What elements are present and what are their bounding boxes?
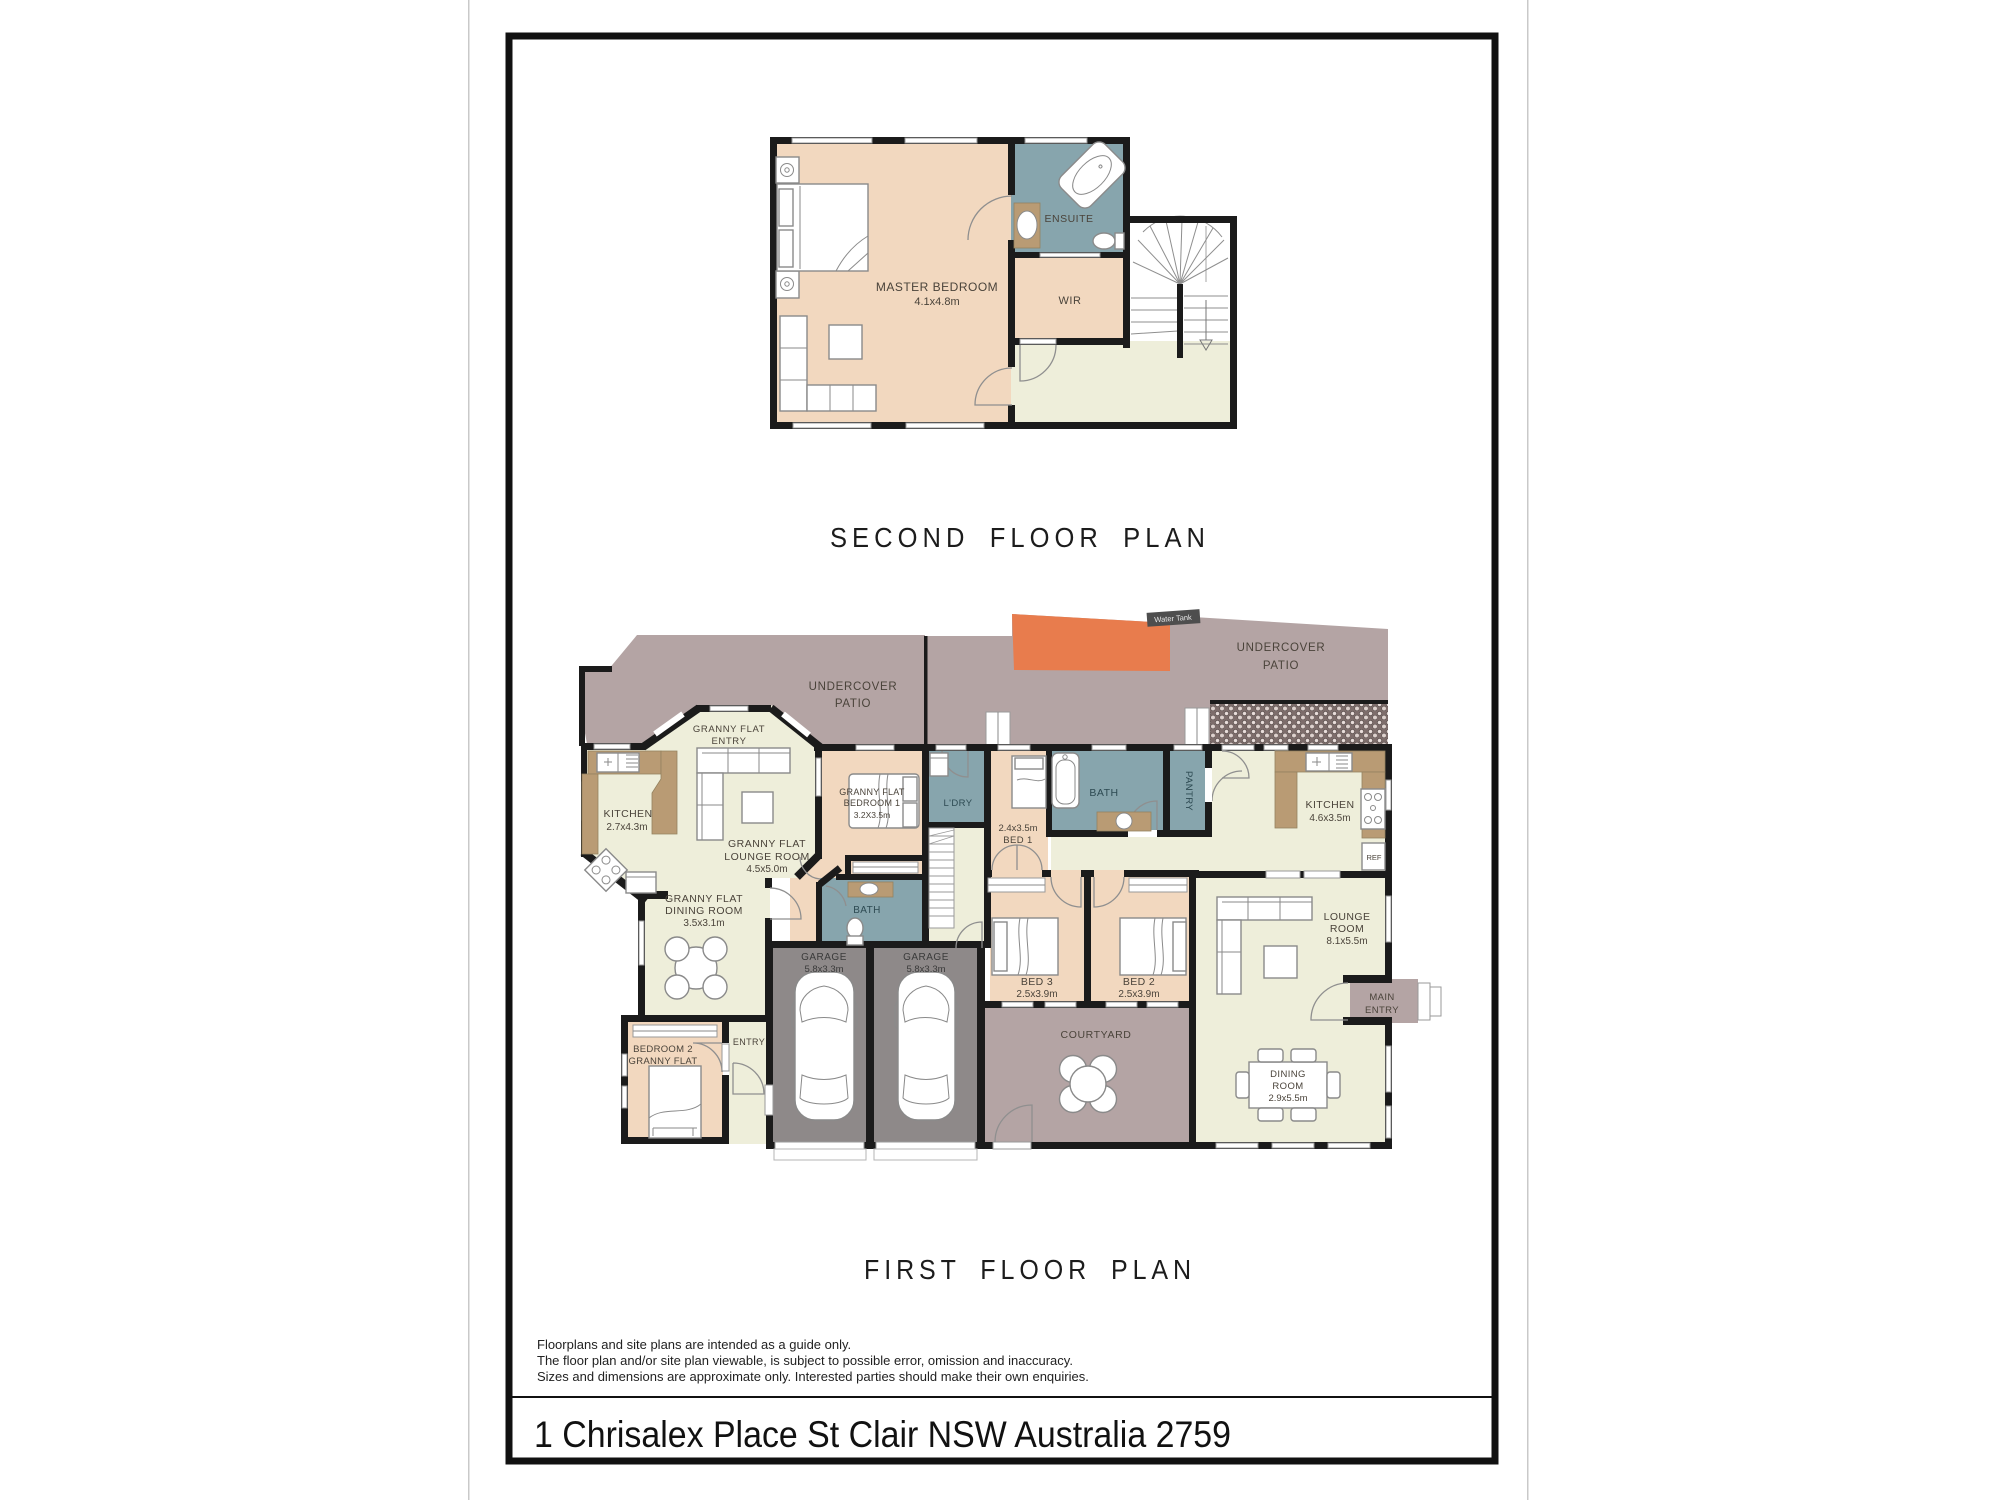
svg-text:WIR: WIR bbox=[1059, 295, 1082, 307]
svg-text:L'DRY: L'DRY bbox=[944, 798, 973, 809]
svg-text:5.8x3.3m: 5.8x3.3m bbox=[906, 964, 945, 975]
svg-text:LOUNGE: LOUNGE bbox=[1324, 911, 1371, 923]
svg-text:4.6x3.5m: 4.6x3.5m bbox=[1309, 813, 1350, 824]
svg-text:SECOND FLOOR PLAN: SECOND FLOOR PLAN bbox=[830, 522, 1210, 553]
svg-text:GRANNY FLAT: GRANNY FLAT bbox=[839, 787, 905, 797]
svg-text:GRANNY FLAT: GRANNY FLAT bbox=[693, 724, 765, 735]
svg-text:DINING ROOM: DINING ROOM bbox=[665, 905, 743, 917]
svg-text:PATIO: PATIO bbox=[835, 698, 871, 710]
svg-text:KITCHEN: KITCHEN bbox=[604, 808, 653, 820]
svg-text:2.5x3.9m: 2.5x3.9m bbox=[1016, 989, 1057, 1000]
svg-text:PATIO: PATIO bbox=[1263, 660, 1299, 672]
svg-text:8.1x5.5m: 8.1x5.5m bbox=[1326, 936, 1367, 947]
svg-text:UNDERCOVER: UNDERCOVER bbox=[809, 681, 898, 693]
svg-text:3.2X3.5m: 3.2X3.5m bbox=[854, 810, 890, 820]
svg-text:BATH: BATH bbox=[1089, 787, 1118, 799]
svg-text:ENTRY: ENTRY bbox=[733, 1037, 765, 1047]
svg-text:ENSUITE: ENSUITE bbox=[1044, 213, 1093, 225]
svg-text:2.4x3.5m: 2.4x3.5m bbox=[998, 823, 1037, 834]
svg-text:5.8x3.3m: 5.8x3.3m bbox=[804, 964, 843, 975]
svg-text:4.1x4.8m: 4.1x4.8m bbox=[914, 296, 959, 308]
svg-text:ENTRY: ENTRY bbox=[1365, 1005, 1399, 1016]
svg-text:GARAGE: GARAGE bbox=[903, 952, 949, 963]
svg-text:BED 1: BED 1 bbox=[1003, 835, 1032, 846]
svg-text:REF: REF bbox=[1367, 853, 1382, 862]
svg-text:GARAGE: GARAGE bbox=[801, 952, 847, 963]
svg-text:3.5x3.1m: 3.5x3.1m bbox=[683, 918, 724, 929]
svg-text:2.9x5.5m: 2.9x5.5m bbox=[1268, 1093, 1307, 1104]
svg-text:ROOM: ROOM bbox=[1272, 1081, 1303, 1092]
svg-text:2.7x4.3m: 2.7x4.3m bbox=[606, 822, 647, 833]
svg-text:Floorplans and site plans are: Floorplans and site plans are intended a… bbox=[537, 1337, 851, 1352]
svg-text:MAIN: MAIN bbox=[1369, 992, 1394, 1003]
svg-text:GRANNY FLAT: GRANNY FLAT bbox=[629, 1056, 698, 1067]
svg-text:ROOM: ROOM bbox=[1330, 923, 1364, 935]
svg-text:BATH: BATH bbox=[853, 905, 881, 916]
svg-text:GRANNY FLAT: GRANNY FLAT bbox=[665, 893, 743, 905]
svg-text:Sizes and dimensions are appro: Sizes and dimensions are approximate onl… bbox=[537, 1369, 1089, 1384]
svg-text:GRANNY FLAT: GRANNY FLAT bbox=[728, 838, 806, 850]
svg-text:4.5x5.0m: 4.5x5.0m bbox=[746, 864, 787, 875]
svg-text:PANTRY: PANTRY bbox=[1183, 771, 1194, 811]
svg-text:ENTRY: ENTRY bbox=[711, 736, 746, 747]
svg-text:BEDROOM 2: BEDROOM 2 bbox=[633, 1044, 693, 1055]
svg-text:LOUNGE ROOM: LOUNGE ROOM bbox=[724, 851, 809, 863]
svg-text:BEDROOM 1: BEDROOM 1 bbox=[844, 798, 901, 808]
svg-text:BED 3: BED 3 bbox=[1021, 976, 1053, 988]
svg-text:BED 2: BED 2 bbox=[1123, 976, 1155, 988]
svg-text:KITCHEN: KITCHEN bbox=[1306, 799, 1355, 811]
svg-text:1 Chrisalex Place St Clair NSW: 1 Chrisalex Place St Clair NSW Australia… bbox=[534, 1414, 1231, 1455]
svg-text:MASTER BEDROOM: MASTER BEDROOM bbox=[876, 280, 998, 294]
svg-text:FIRST FLOOR PLAN: FIRST FLOOR PLAN bbox=[864, 1254, 1196, 1285]
svg-text:The floor plan and/or site pla: The floor plan and/or site plan viewable… bbox=[537, 1353, 1073, 1368]
svg-text:2.5x3.9m: 2.5x3.9m bbox=[1118, 989, 1159, 1000]
svg-text:UNDERCOVER: UNDERCOVER bbox=[1237, 642, 1326, 654]
svg-text:DINING: DINING bbox=[1270, 1069, 1306, 1080]
svg-text:COURTYARD: COURTYARD bbox=[1061, 1029, 1132, 1041]
